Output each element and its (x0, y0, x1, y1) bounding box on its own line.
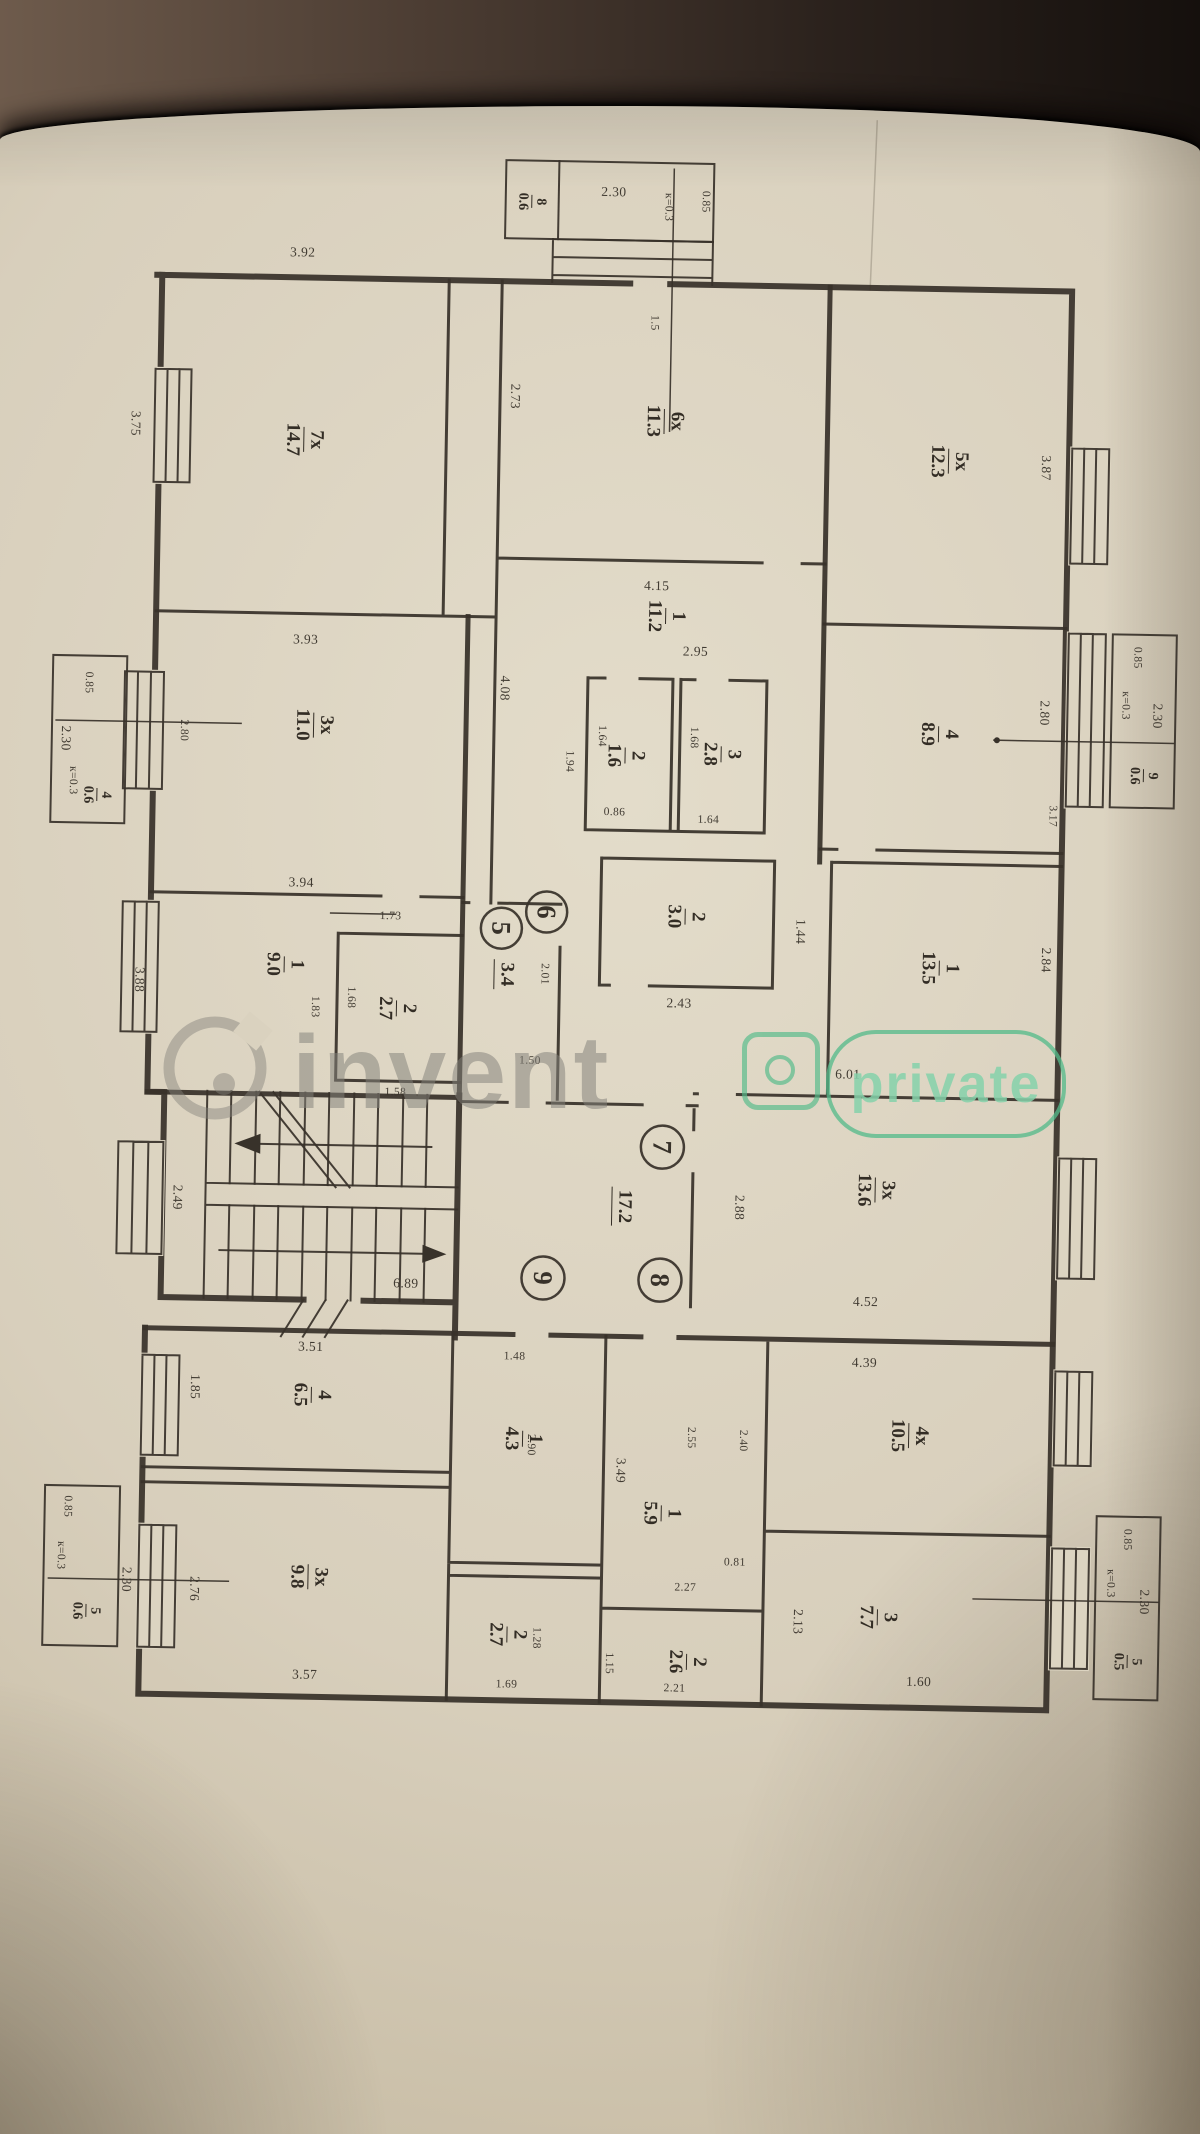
apartment-circles: 5 6 7 8 9 (474, 890, 688, 1302)
apartment-number: 8 (645, 1273, 675, 1287)
stair-arrow-down (422, 1245, 446, 1263)
apartment-number: 9 (528, 1271, 558, 1285)
photographed-floor-plan: 5 6 7 8 9 3.923.752.733.874.152.954.081.… (0, 0, 1200, 2134)
partition-walls (136, 275, 1072, 1710)
apartment-number: 5 (486, 921, 516, 935)
stair-arrow-up (234, 1133, 260, 1153)
window-hatches (105, 231, 1115, 1671)
leader-lines (40, 158, 1184, 1602)
stair-treads (228, 1091, 428, 1302)
floor-plan-drawing: 5 6 7 8 9 (0, 0, 1200, 2134)
apartment-number: 6 (532, 905, 562, 919)
apartment-number: 7 (647, 1140, 677, 1154)
paper-crease (870, 121, 877, 290)
